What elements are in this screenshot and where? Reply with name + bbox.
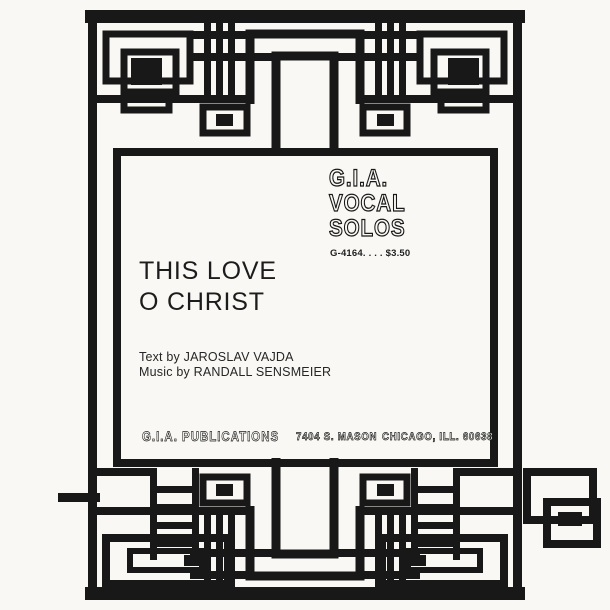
title-line-2: O CHRIST xyxy=(139,287,277,318)
sheet-music-cover: G.I.A. VOCAL SOLOS G-4164. . . . $3.50 T… xyxy=(0,0,610,610)
series-line-2: VOCAL xyxy=(329,191,449,216)
publisher-city: CHICAGO, ILL. 60638 xyxy=(382,431,493,443)
series-mark: G.I.A. VOCAL SOLOS xyxy=(329,166,449,241)
series-line-3: SOLOS xyxy=(329,216,449,241)
prairie-border-graphic xyxy=(0,0,610,610)
publisher-name: G.I.A. PUBLICATIONS xyxy=(142,428,279,444)
publisher-address: 7404 S. MASON xyxy=(296,431,377,443)
catalog-number: G-4164. . . . $3.50 xyxy=(330,248,410,259)
title: THIS LOVE O CHRIST xyxy=(139,256,277,318)
credits: Text by JAROSLAV VAJDA Music by RANDALL … xyxy=(139,350,331,380)
series-line-1: G.I.A. xyxy=(329,166,449,191)
title-line-1: THIS LOVE xyxy=(139,256,277,287)
music-credit: Music by RANDALL SENSMEIER xyxy=(139,365,331,380)
text-credit: Text by JAROSLAV VAJDA xyxy=(139,350,331,365)
border-top-band xyxy=(85,10,525,152)
